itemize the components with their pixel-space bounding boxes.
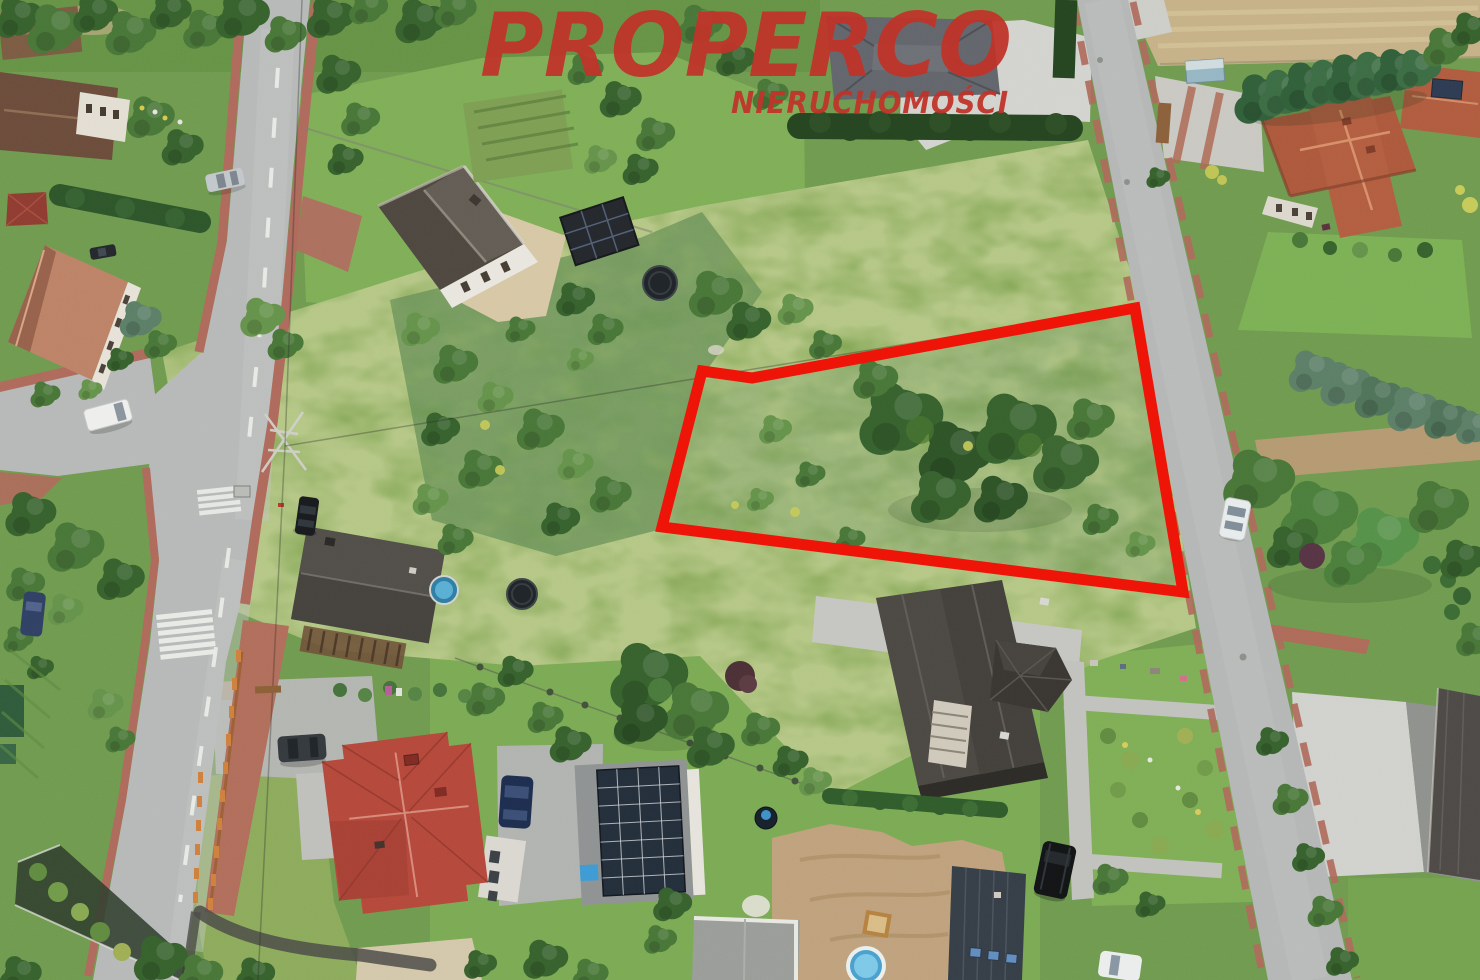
aerial-photo: PROPERCO NIERUCHOMOŚCI	[0, 0, 1480, 980]
watermark-tagline: NIERUCHOMOŚCI	[731, 84, 1009, 121]
aerial-photo-listing: PROPERCO NIERUCHOMOŚCI	[0, 0, 1480, 980]
watermark-brand: PROPERCO	[480, 0, 1012, 97]
